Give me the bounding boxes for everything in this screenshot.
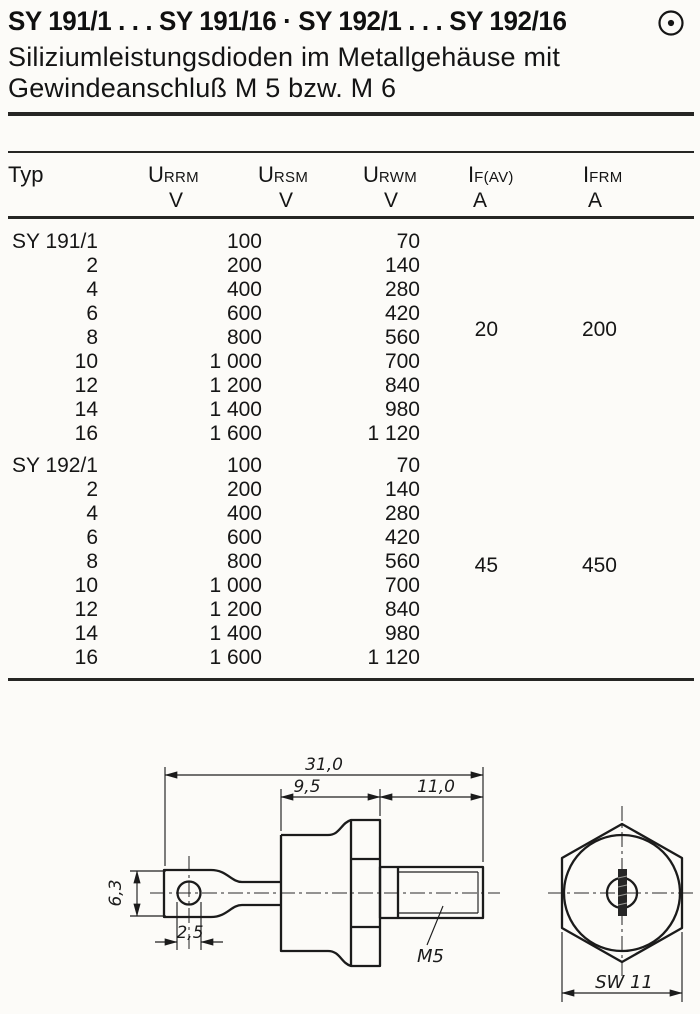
unit-label: A: [468, 189, 514, 213]
cell-urwm: 140: [262, 478, 420, 502]
value-ifav: 20: [428, 318, 498, 342]
table-row: 2200140: [8, 254, 668, 278]
cell-urwm: 1 120: [262, 422, 420, 446]
page-title: SY 191/1 . . . SY 191/16 · SY 192/1 . . …: [8, 6, 635, 37]
datasheet-page: SY 191/1 . . . SY 191/16 · SY 192/1 . . …: [0, 0, 700, 1014]
cell-urwm: 70: [262, 230, 420, 254]
rule-below-table-header: [8, 216, 694, 219]
table-row: 121 200840: [8, 374, 668, 398]
current-ratings: 20200: [8, 318, 668, 342]
cell-typ: 14: [8, 398, 98, 422]
cell-typ: 6: [8, 526, 98, 550]
dim-label-hole: 2,5: [176, 923, 203, 943]
technical-drawing: 31,0 9,5 11,0 6,3 2,5 M5: [0, 700, 700, 1014]
cell-urrm: 200: [98, 478, 262, 502]
col-header-typ: Typ: [8, 162, 43, 188]
cell-typ: 12: [8, 374, 98, 398]
end-view: SW 11: [548, 806, 696, 1002]
dim-label-overall: 31,0: [305, 755, 343, 775]
dim-label-stud: 11,0: [417, 777, 455, 797]
table-row: SY 192/110070: [8, 454, 668, 478]
cell-typ: 2: [8, 478, 98, 502]
col-header-ifav: IF(AV) A: [468, 162, 514, 213]
col-header-ursm: URSM V: [258, 162, 308, 213]
value-ifrm: 450: [508, 554, 617, 578]
cell-typ: SY 191/1: [8, 230, 98, 254]
table-block-sy-192: SY 192/110070220014044002806600420880056…: [8, 454, 668, 670]
table-row: 4400280: [8, 278, 668, 302]
cell-urrm: 400: [98, 278, 262, 302]
cell-urwm: 840: [262, 598, 420, 622]
cell-urrm: 600: [98, 526, 262, 550]
cell-urwm: 280: [262, 502, 420, 526]
col-header-urrm: URRM V: [148, 162, 199, 213]
subtitle-line-2: Gewindeanschluß M 5 bzw. M 6: [8, 73, 648, 104]
unit-label: V: [258, 189, 308, 213]
cell-urrm: 1 600: [98, 422, 262, 446]
cell-typ: 12: [8, 598, 98, 622]
cell-urrm: 1 200: [98, 374, 262, 398]
cell-urwm: 280: [262, 278, 420, 302]
cell-typ: SY 192/1: [8, 454, 98, 478]
cell-urrm: 200: [98, 254, 262, 278]
dim-label-wrench: SW 11: [595, 972, 653, 993]
col-header-urwm: URWM V: [363, 162, 417, 213]
current-ratings: 45450: [8, 554, 668, 578]
cell-typ: 2: [8, 254, 98, 278]
dim-label-lug-height: 6,3: [106, 879, 126, 906]
unit-label: V: [363, 189, 417, 213]
cell-urrm: 1 400: [98, 398, 262, 422]
value-ifav: 45: [428, 554, 498, 578]
cell-urrm: 1 200: [98, 598, 262, 622]
table-row: 141 400980: [8, 398, 668, 422]
side-view: 31,0 9,5 11,0 6,3 2,5 M5: [106, 755, 500, 967]
table-row: 161 6001 120: [8, 422, 668, 446]
cell-typ: 14: [8, 622, 98, 646]
value-ifrm: 200: [508, 318, 617, 342]
table-row: 141 400980: [8, 622, 668, 646]
subtitle-line-1: Siliziumleistungsdioden im Metallgehäuse…: [8, 42, 648, 73]
cell-urrm: 400: [98, 502, 262, 526]
cell-urwm: 700: [262, 350, 420, 374]
cell-typ: 16: [8, 422, 98, 446]
cell-typ: 10: [8, 350, 98, 374]
table-row: 4400280: [8, 502, 668, 526]
cell-urrm: 100: [98, 454, 262, 478]
cell-urwm: 420: [262, 526, 420, 550]
circle-dot-icon: [656, 8, 686, 38]
table-row: 101 000700: [8, 350, 668, 374]
cell-urwm: 840: [262, 374, 420, 398]
cell-urwm: 980: [262, 398, 420, 422]
rule-above-table-header: [8, 151, 694, 153]
unit-label: A: [583, 189, 623, 213]
cell-urwm: 140: [262, 254, 420, 278]
cell-urwm: 1 120: [262, 646, 420, 670]
cell-urrm: 1 600: [98, 646, 262, 670]
page-subtitle: Siliziumleistungsdioden im Metallgehäuse…: [8, 42, 648, 104]
cell-typ: 16: [8, 646, 98, 670]
table-row: 121 200840: [8, 598, 668, 622]
cell-urrm: 100: [98, 230, 262, 254]
leader-line: [427, 906, 443, 945]
table-row: 2200140: [8, 478, 668, 502]
table-row: 161 6001 120: [8, 646, 668, 670]
unit-label: V: [148, 189, 199, 213]
cell-urwm: 980: [262, 622, 420, 646]
rule-table-bottom: [8, 678, 694, 681]
cell-urrm: 1 400: [98, 622, 262, 646]
cell-typ: 4: [8, 278, 98, 302]
cell-urwm: 70: [262, 454, 420, 478]
dim-label-body: 9,5: [293, 777, 320, 797]
cell-typ: 4: [8, 502, 98, 526]
col-header-ifrm: IFRM A: [583, 162, 623, 213]
table-block-sy-191: SY 191/110070220014044002806600420880056…: [8, 230, 668, 446]
cell-urrm: 1 000: [98, 350, 262, 374]
table-row: SY 191/110070: [8, 230, 668, 254]
rule-under-title: [8, 112, 694, 116]
thread-label: M5: [417, 946, 444, 967]
table-row: 6600420: [8, 526, 668, 550]
